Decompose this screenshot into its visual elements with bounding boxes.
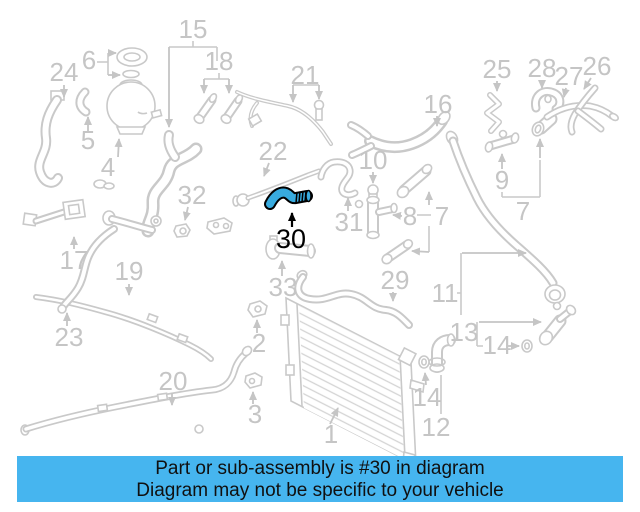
part-label-21: 21 — [291, 60, 320, 90]
part-label-19: 19 — [115, 256, 144, 286]
part-label-27: 27 — [555, 61, 584, 91]
part-label-12: 12 — [422, 412, 451, 442]
part-13-tee-shape — [537, 303, 577, 348]
part-arrow-4 — [118, 139, 119, 157]
banner-line1: Part or sub-assembly is #30 in diagram — [17, 458, 623, 480]
part-label-25: 25 — [483, 54, 512, 84]
part-20-pipe-shape — [21, 345, 253, 435]
part-label-11: 11 — [432, 278, 459, 308]
part-7-bushing-shape — [530, 119, 551, 137]
part-25-hose-shape — [487, 95, 499, 131]
part-14-oring-right-shape — [522, 340, 532, 352]
part-17-sensor-line-shape — [23, 180, 114, 226]
part-2-clip-shape — [248, 301, 267, 317]
part-label-8: 8 — [403, 201, 417, 231]
part-label-2: 2 — [252, 328, 266, 358]
part-label-18: 18 — [205, 46, 234, 76]
part-label-17: 17 — [60, 245, 89, 275]
part-label-30-highlighted: 30 — [276, 224, 306, 254]
part-5-elbow-shape — [80, 92, 86, 112]
part-label-6: 6 — [82, 45, 96, 75]
part-32-clamp-shape — [151, 216, 232, 237]
part-label-13: 13 — [450, 317, 479, 347]
part-label-24: 24 — [50, 57, 79, 87]
part-18-connectors-shape — [193, 93, 244, 125]
part-arrow-14 — [425, 373, 426, 385]
part-arrow-8 — [393, 215, 402, 216]
part-label-28: 28 — [528, 53, 557, 83]
part-label-23: 23 — [55, 322, 84, 352]
parts-diagram-page: 1562418212528272654162210323198771719233… — [0, 0, 640, 512]
part-28-elbow-shape — [535, 91, 559, 109]
part-label-14: 14 — [483, 330, 512, 360]
part-label-15: 15 — [179, 14, 208, 44]
banner-line2: Diagram may not be specific to your vehi… — [17, 480, 623, 502]
part-label-20: 20 — [159, 366, 188, 396]
part-label-14: 14 — [413, 382, 442, 412]
part-label-7: 7 — [516, 196, 530, 226]
part-label-31: 31 — [335, 207, 364, 237]
part-label-16: 16 — [424, 89, 453, 119]
part-30-highlight-shape — [270, 191, 311, 205]
part-label-33: 33 — [269, 272, 298, 302]
part-4-expansion-tank-shape — [107, 80, 162, 134]
part-label-26: 26 — [583, 51, 612, 81]
part-7-lower-connector-shape — [380, 238, 414, 265]
part-label-32: 32 — [178, 180, 207, 210]
part-label-4: 4 — [101, 152, 115, 182]
part-label-22: 22 — [259, 136, 288, 166]
part-6-cap-and-seal-shape — [117, 48, 147, 78]
part-31-hose-shape — [321, 162, 355, 195]
part-7-upper-connector-shape — [395, 163, 433, 200]
part-label-3: 3 — [248, 399, 262, 429]
part-arrow-7 — [412, 251, 429, 252]
part-9-sensor-shape — [484, 131, 519, 153]
parts-diagram-canvas: 1562418212528272654162210323198771719233… — [0, 0, 640, 512]
part-3-clip-shape — [245, 373, 262, 388]
part-11-hose-shape — [444, 129, 565, 303]
part-label-10: 10 — [359, 145, 388, 175]
part-label-7: 7 — [435, 201, 449, 231]
part-label-29: 29 — [381, 265, 410, 295]
part-14-oring-left-shape — [419, 356, 429, 368]
part-label-9: 9 — [495, 165, 509, 195]
highlight-banner: Part or sub-assembly is #30 in diagram D… — [17, 456, 623, 502]
part-24-hose-shape — [39, 91, 64, 183]
